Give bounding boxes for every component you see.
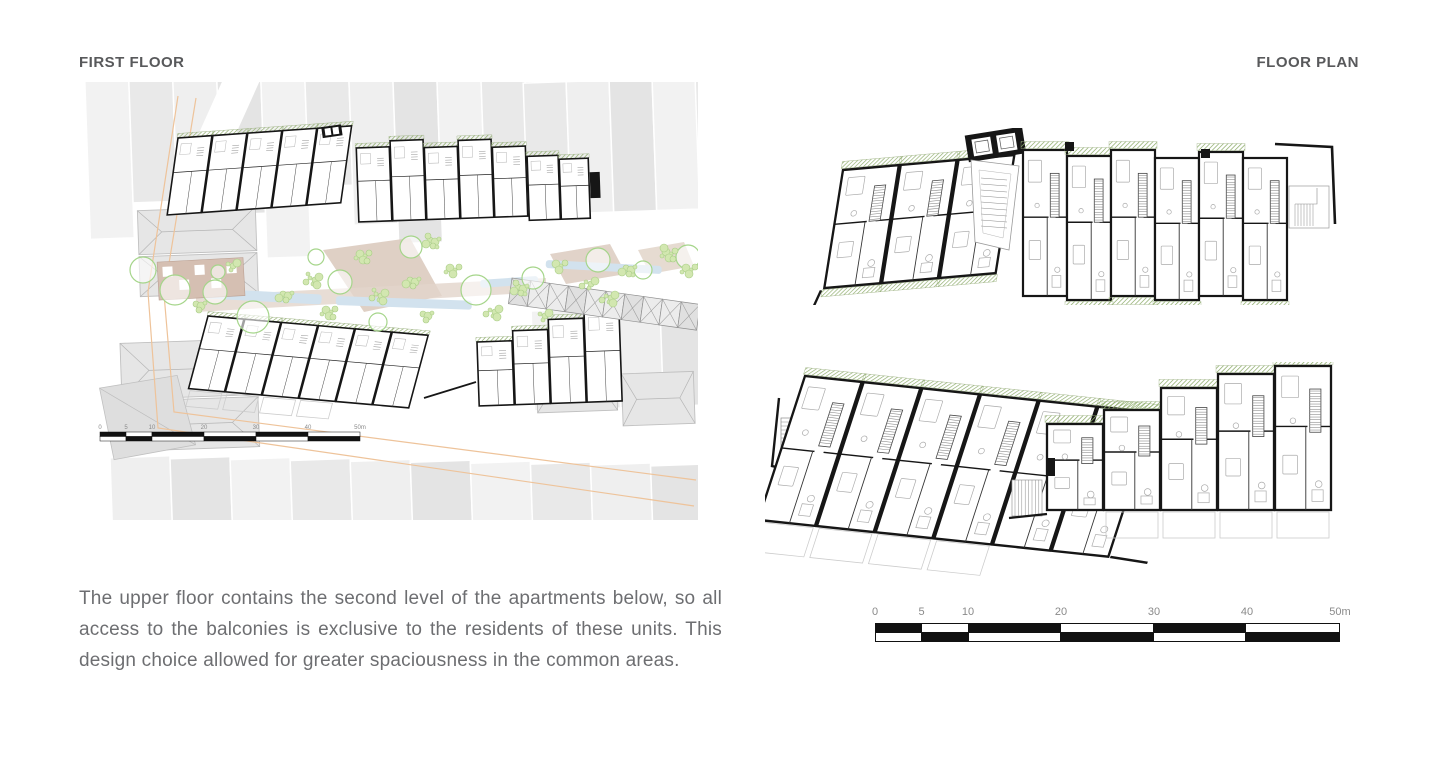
floor-plan-south-strip bbox=[765, 362, 1350, 587]
scale-bar-segment bbox=[876, 624, 922, 632]
floor-plan-south-drawing bbox=[765, 362, 1350, 587]
description-paragraph: The upper floor contains the second leve… bbox=[79, 583, 722, 676]
scale-label: 10 bbox=[962, 606, 974, 618]
scale-bar-segment bbox=[922, 633, 968, 641]
scale-bar-segment bbox=[1154, 633, 1247, 641]
site-north-row-east bbox=[355, 132, 529, 222]
svg-text:0: 0 bbox=[98, 425, 102, 431]
scale-bar-segment bbox=[876, 633, 922, 641]
page-title-floor-plan: FLOOR PLAN bbox=[1257, 54, 1360, 71]
floor-plan-north-strip bbox=[795, 128, 1345, 305]
scale-bar-segment bbox=[1246, 624, 1339, 632]
apartment-unit bbox=[1021, 142, 1069, 297]
scale-bar-row bbox=[876, 624, 1339, 632]
scale-label: 40 bbox=[1241, 606, 1253, 618]
scale-bar-labels: 051020304050m bbox=[875, 606, 1340, 620]
scale-bar-graphic bbox=[875, 623, 1340, 642]
apartment-unit bbox=[1197, 144, 1245, 297]
stair-core bbox=[965, 128, 1027, 162]
site-plan-drawing: 051020304050m bbox=[78, 82, 698, 520]
portfolio-page: FIRST FLOOR FLOOR PLAN 051020304050m 051… bbox=[0, 0, 1440, 784]
scale-label: 50m bbox=[1329, 606, 1350, 618]
scale-bar-segment bbox=[922, 624, 968, 632]
svg-text:20: 20 bbox=[201, 425, 208, 431]
apartment-unit bbox=[1109, 142, 1157, 305]
apartment-unit bbox=[1065, 148, 1113, 306]
stair-void bbox=[971, 160, 1019, 250]
svg-text:40: 40 bbox=[305, 425, 312, 431]
scale-label: 30 bbox=[1148, 606, 1160, 618]
north-strip-right-cluster bbox=[1021, 142, 1289, 306]
floor-plan-north-drawing bbox=[795, 128, 1345, 305]
svg-text:50m: 50m bbox=[354, 425, 366, 431]
apartment-unit bbox=[1153, 158, 1201, 305]
scale-bar-segment bbox=[1246, 633, 1339, 641]
scale-bar: 051020304050m bbox=[875, 606, 1340, 642]
apartment-unit bbox=[1159, 380, 1219, 511]
apartment-unit bbox=[1102, 402, 1162, 511]
svg-text:30: 30 bbox=[253, 425, 260, 431]
scale-bar-segment bbox=[1061, 624, 1154, 632]
scale-bar-segment bbox=[1061, 633, 1154, 641]
scale-bar-segment bbox=[969, 633, 1062, 641]
scale-bar-row bbox=[876, 632, 1339, 641]
scale-bar-segment bbox=[969, 624, 1062, 632]
apartment-unit bbox=[1241, 158, 1289, 305]
scale-bar-segment bbox=[1154, 624, 1247, 632]
first-floor-site-plan: 051020304050m bbox=[78, 82, 698, 520]
apartment-unit bbox=[1273, 362, 1333, 510]
scale-label: 0 bbox=[872, 606, 878, 618]
page-title-first-floor: FIRST FLOOR bbox=[79, 54, 185, 71]
apartment-unit bbox=[1216, 366, 1276, 511]
scale-label: 20 bbox=[1055, 606, 1067, 618]
scale-label: 5 bbox=[918, 606, 924, 618]
svg-text:10: 10 bbox=[149, 425, 156, 431]
connector-stair bbox=[1009, 480, 1047, 518]
